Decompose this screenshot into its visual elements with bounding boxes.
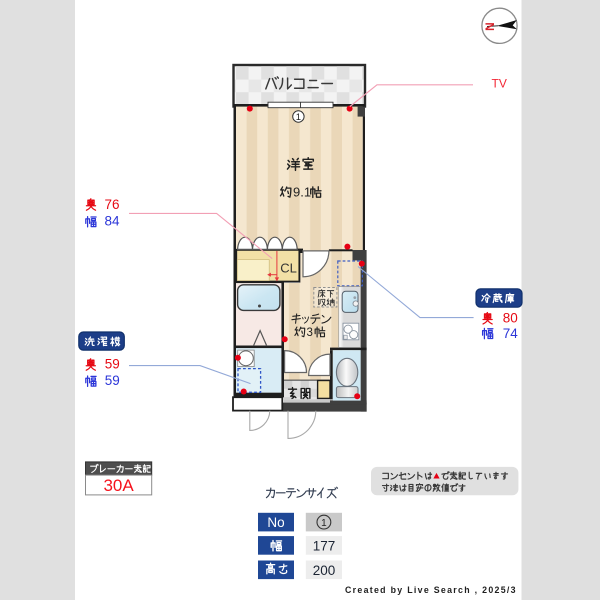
svg-text:84: 84 xyxy=(105,214,121,229)
svg-text:1: 1 xyxy=(321,518,327,529)
svg-text:No: No xyxy=(267,515,284,530)
svg-text:1: 1 xyxy=(296,112,301,123)
svg-text:9.1: 9.1 xyxy=(293,185,311,200)
svg-text:177: 177 xyxy=(313,539,336,554)
svg-text:N: N xyxy=(483,22,497,31)
svg-text:CL: CL xyxy=(280,261,297,276)
svg-text:59: 59 xyxy=(105,373,120,388)
svg-text:3: 3 xyxy=(307,327,313,339)
svg-text:Created by Live Search , 2025/: Created by Live Search , 2025/3 xyxy=(345,585,517,595)
svg-text:74: 74 xyxy=(503,326,519,341)
svg-text:TV: TV xyxy=(492,77,507,91)
svg-text:80: 80 xyxy=(503,311,518,326)
svg-text:59: 59 xyxy=(105,357,120,372)
svg-text:200: 200 xyxy=(313,563,336,578)
svg-text:30A: 30A xyxy=(103,476,134,495)
svg-text:76: 76 xyxy=(105,197,120,212)
